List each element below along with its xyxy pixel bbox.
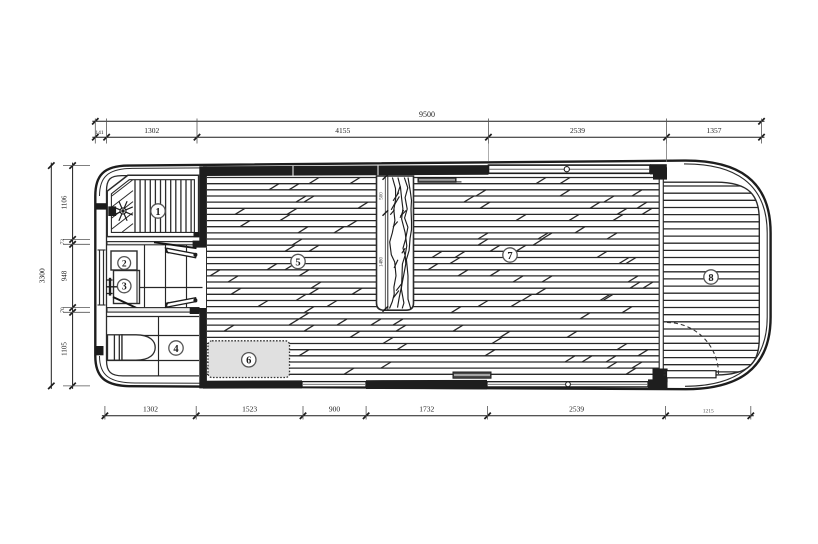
svg-text:1105: 1105	[60, 342, 68, 356]
svg-text:1732: 1732	[419, 405, 434, 414]
svg-text:141: 141	[95, 130, 104, 136]
svg-text:948: 948	[60, 270, 68, 281]
svg-text:2539: 2539	[570, 126, 585, 135]
svg-text:900: 900	[329, 405, 341, 414]
svg-text:1106: 1106	[60, 195, 68, 209]
svg-text:3: 3	[122, 282, 127, 293]
svg-text:3300: 3300	[38, 268, 47, 283]
svg-text:2: 2	[122, 259, 127, 269]
svg-text:70: 70	[60, 307, 66, 313]
svg-text:9500: 9500	[419, 110, 435, 119]
svg-text:4: 4	[173, 344, 179, 355]
svg-text:500: 500	[379, 192, 384, 200]
svg-text:1357: 1357	[707, 126, 722, 135]
svg-text:73: 73	[60, 239, 66, 245]
svg-text:2539: 2539	[569, 405, 584, 414]
svg-text:5: 5	[295, 257, 300, 268]
svg-text:6: 6	[246, 356, 251, 367]
svg-text:1: 1	[155, 207, 160, 218]
svg-text:1302: 1302	[143, 405, 158, 414]
svg-text:4155: 4155	[335, 126, 350, 135]
svg-text:8: 8	[708, 273, 713, 284]
svg-text:1302: 1302	[144, 126, 159, 135]
svg-text:1523: 1523	[242, 405, 257, 414]
svg-text:7: 7	[507, 251, 512, 262]
svg-text:1215: 1215	[703, 409, 714, 415]
svg-text:1480: 1480	[379, 257, 384, 268]
